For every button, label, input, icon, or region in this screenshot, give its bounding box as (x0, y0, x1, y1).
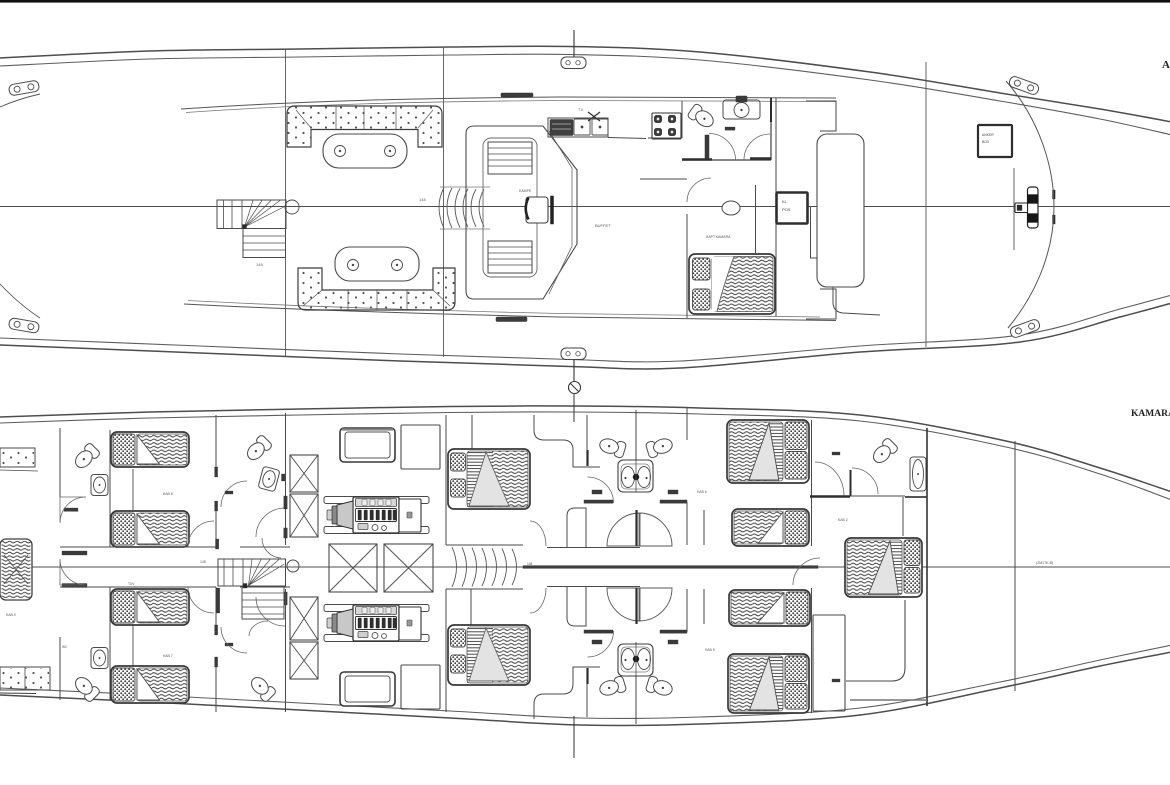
svg-text:KAPT.KAMARA: KAPT.KAMARA (706, 235, 731, 239)
svg-text:KAB.9: KAB.9 (6, 613, 16, 617)
svg-text:KL: KL (782, 199, 788, 204)
svg-text:ANKER: ANKER (982, 133, 994, 137)
svg-text:KAMPE: KAMPE (519, 189, 532, 193)
svg-text:POS: POS (782, 207, 791, 212)
svg-text:KAB 7: KAB 7 (163, 654, 173, 658)
svg-text:BUFFET: BUFFET (595, 223, 611, 228)
svg-text:TUV: TUV (128, 582, 135, 586)
svg-text:AN: AN (1162, 59, 1170, 71)
svg-text:148: 148 (527, 562, 533, 566)
svg-text:KAB 5: KAB 5 (705, 648, 715, 652)
svg-text:WC: WC (62, 645, 68, 649)
svg-text:T.V.: T.V. (578, 108, 584, 112)
svg-text:148: 148 (419, 197, 426, 202)
svg-text:(2M17K,B): (2M17K,B) (1036, 561, 1053, 565)
svg-text:KAB 6: KAB 6 (697, 490, 707, 494)
svg-text:BOX: BOX (982, 140, 990, 144)
svg-text:148: 148 (256, 262, 263, 267)
svg-text:KAB 8: KAB 8 (163, 492, 173, 496)
svg-text:KAMARAL: KAMARAL (1131, 409, 1170, 419)
svg-text:148: 148 (200, 560, 206, 564)
svg-text:KAB 2: KAB 2 (838, 518, 848, 522)
